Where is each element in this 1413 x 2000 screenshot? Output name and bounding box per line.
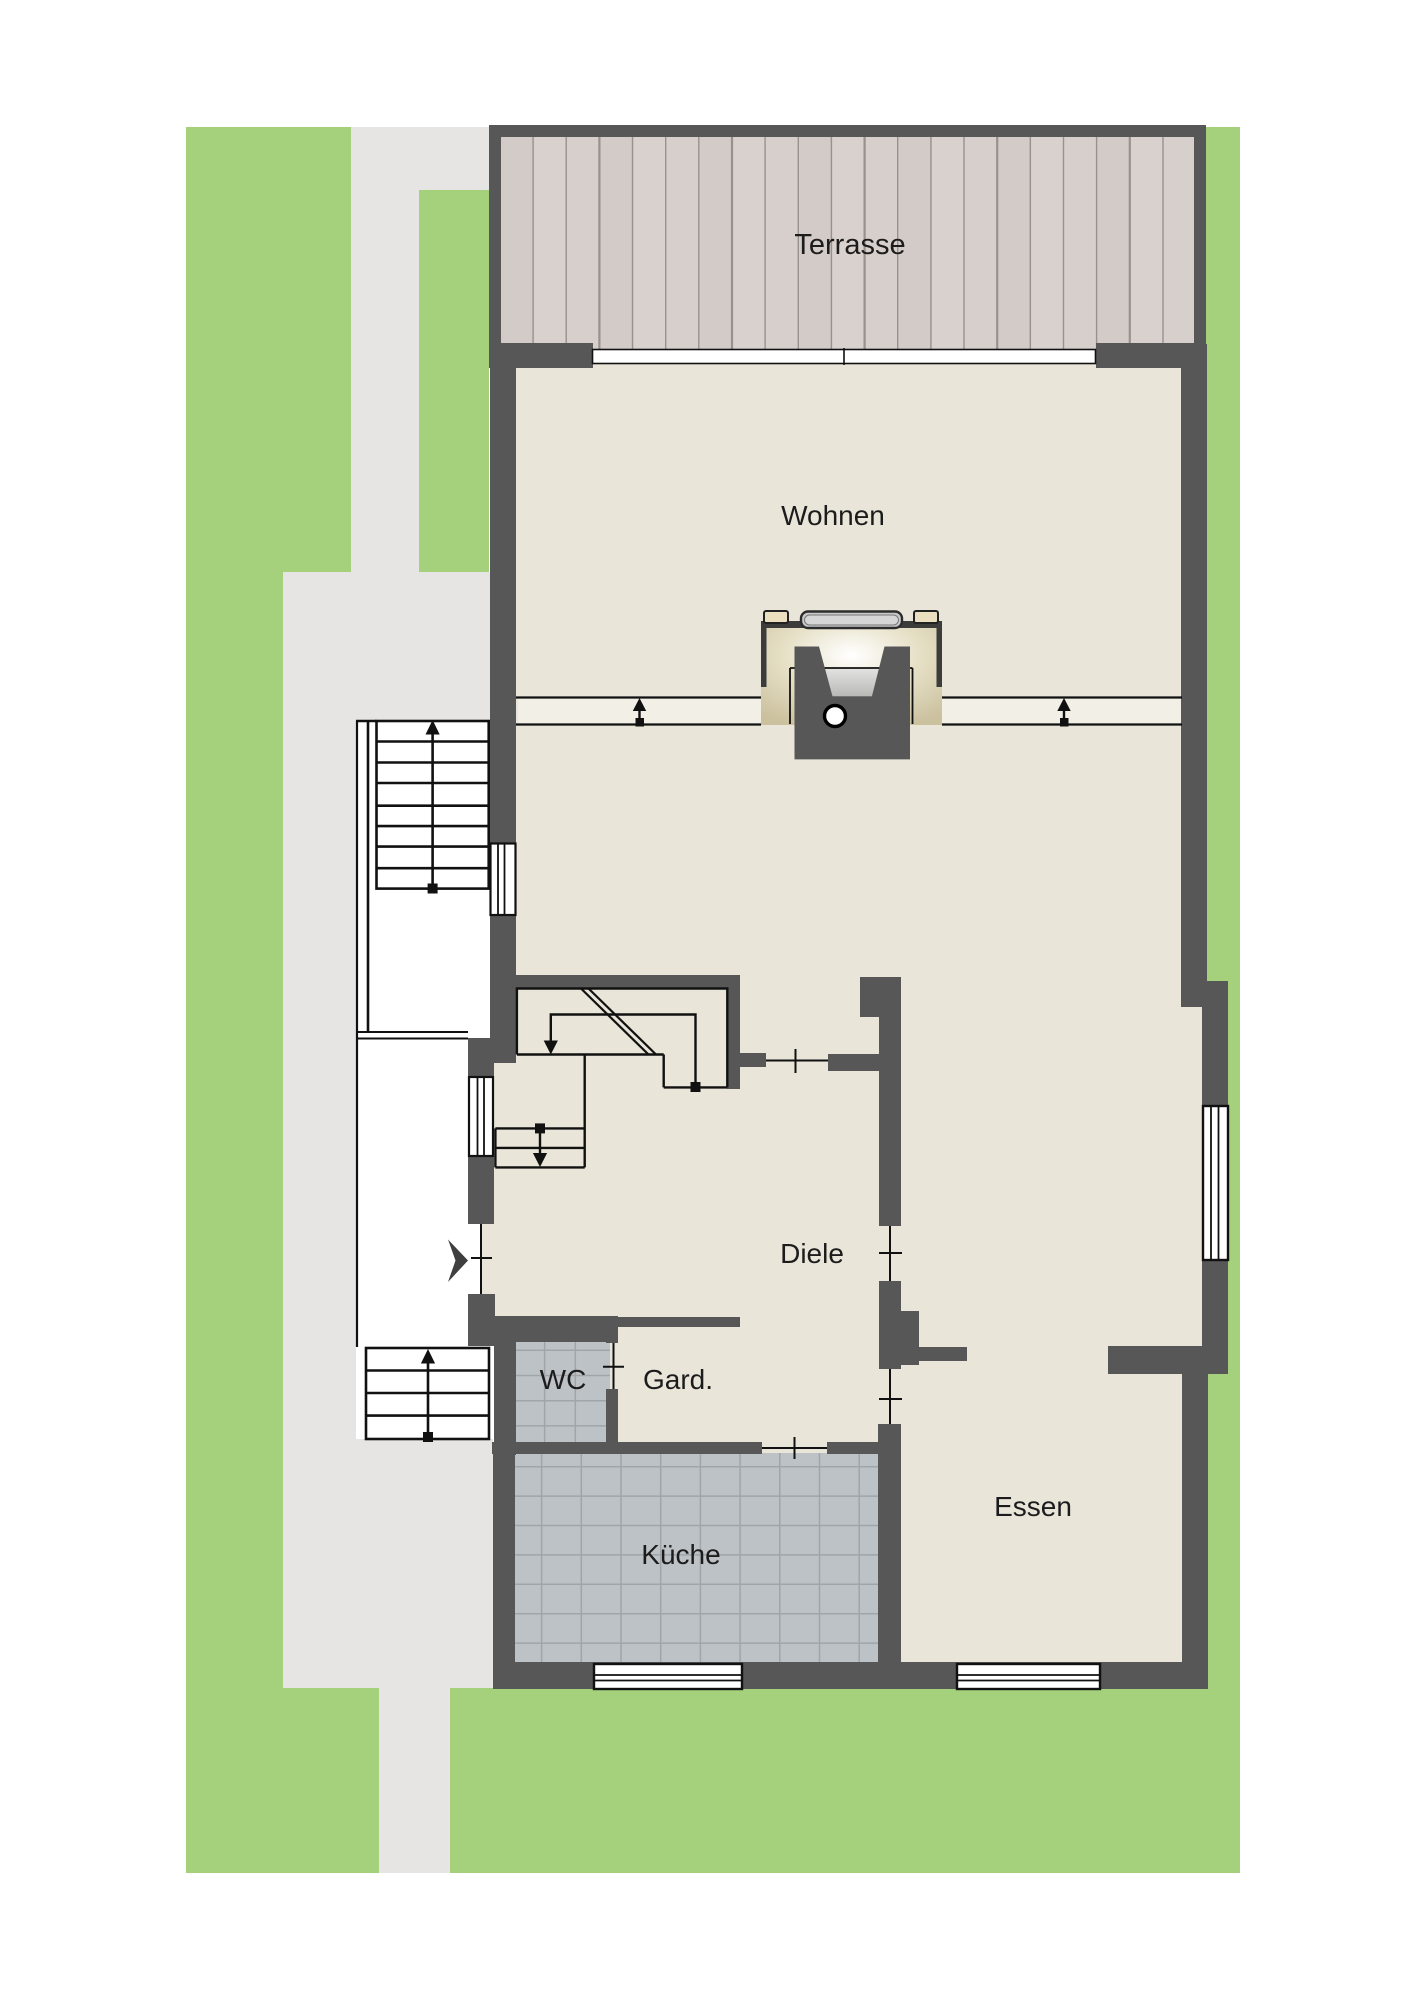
svg-text:Terrasse: Terrasse: [794, 229, 905, 261]
svg-text:WC: WC: [540, 1364, 587, 1395]
svg-text:Essen: Essen: [994, 1491, 1072, 1522]
svg-text:Küche: Küche: [641, 1539, 720, 1570]
svg-text:Gard.: Gard.: [643, 1364, 713, 1395]
svg-text:Wohnen: Wohnen: [781, 500, 885, 531]
svg-text:Diele: Diele: [780, 1238, 844, 1269]
